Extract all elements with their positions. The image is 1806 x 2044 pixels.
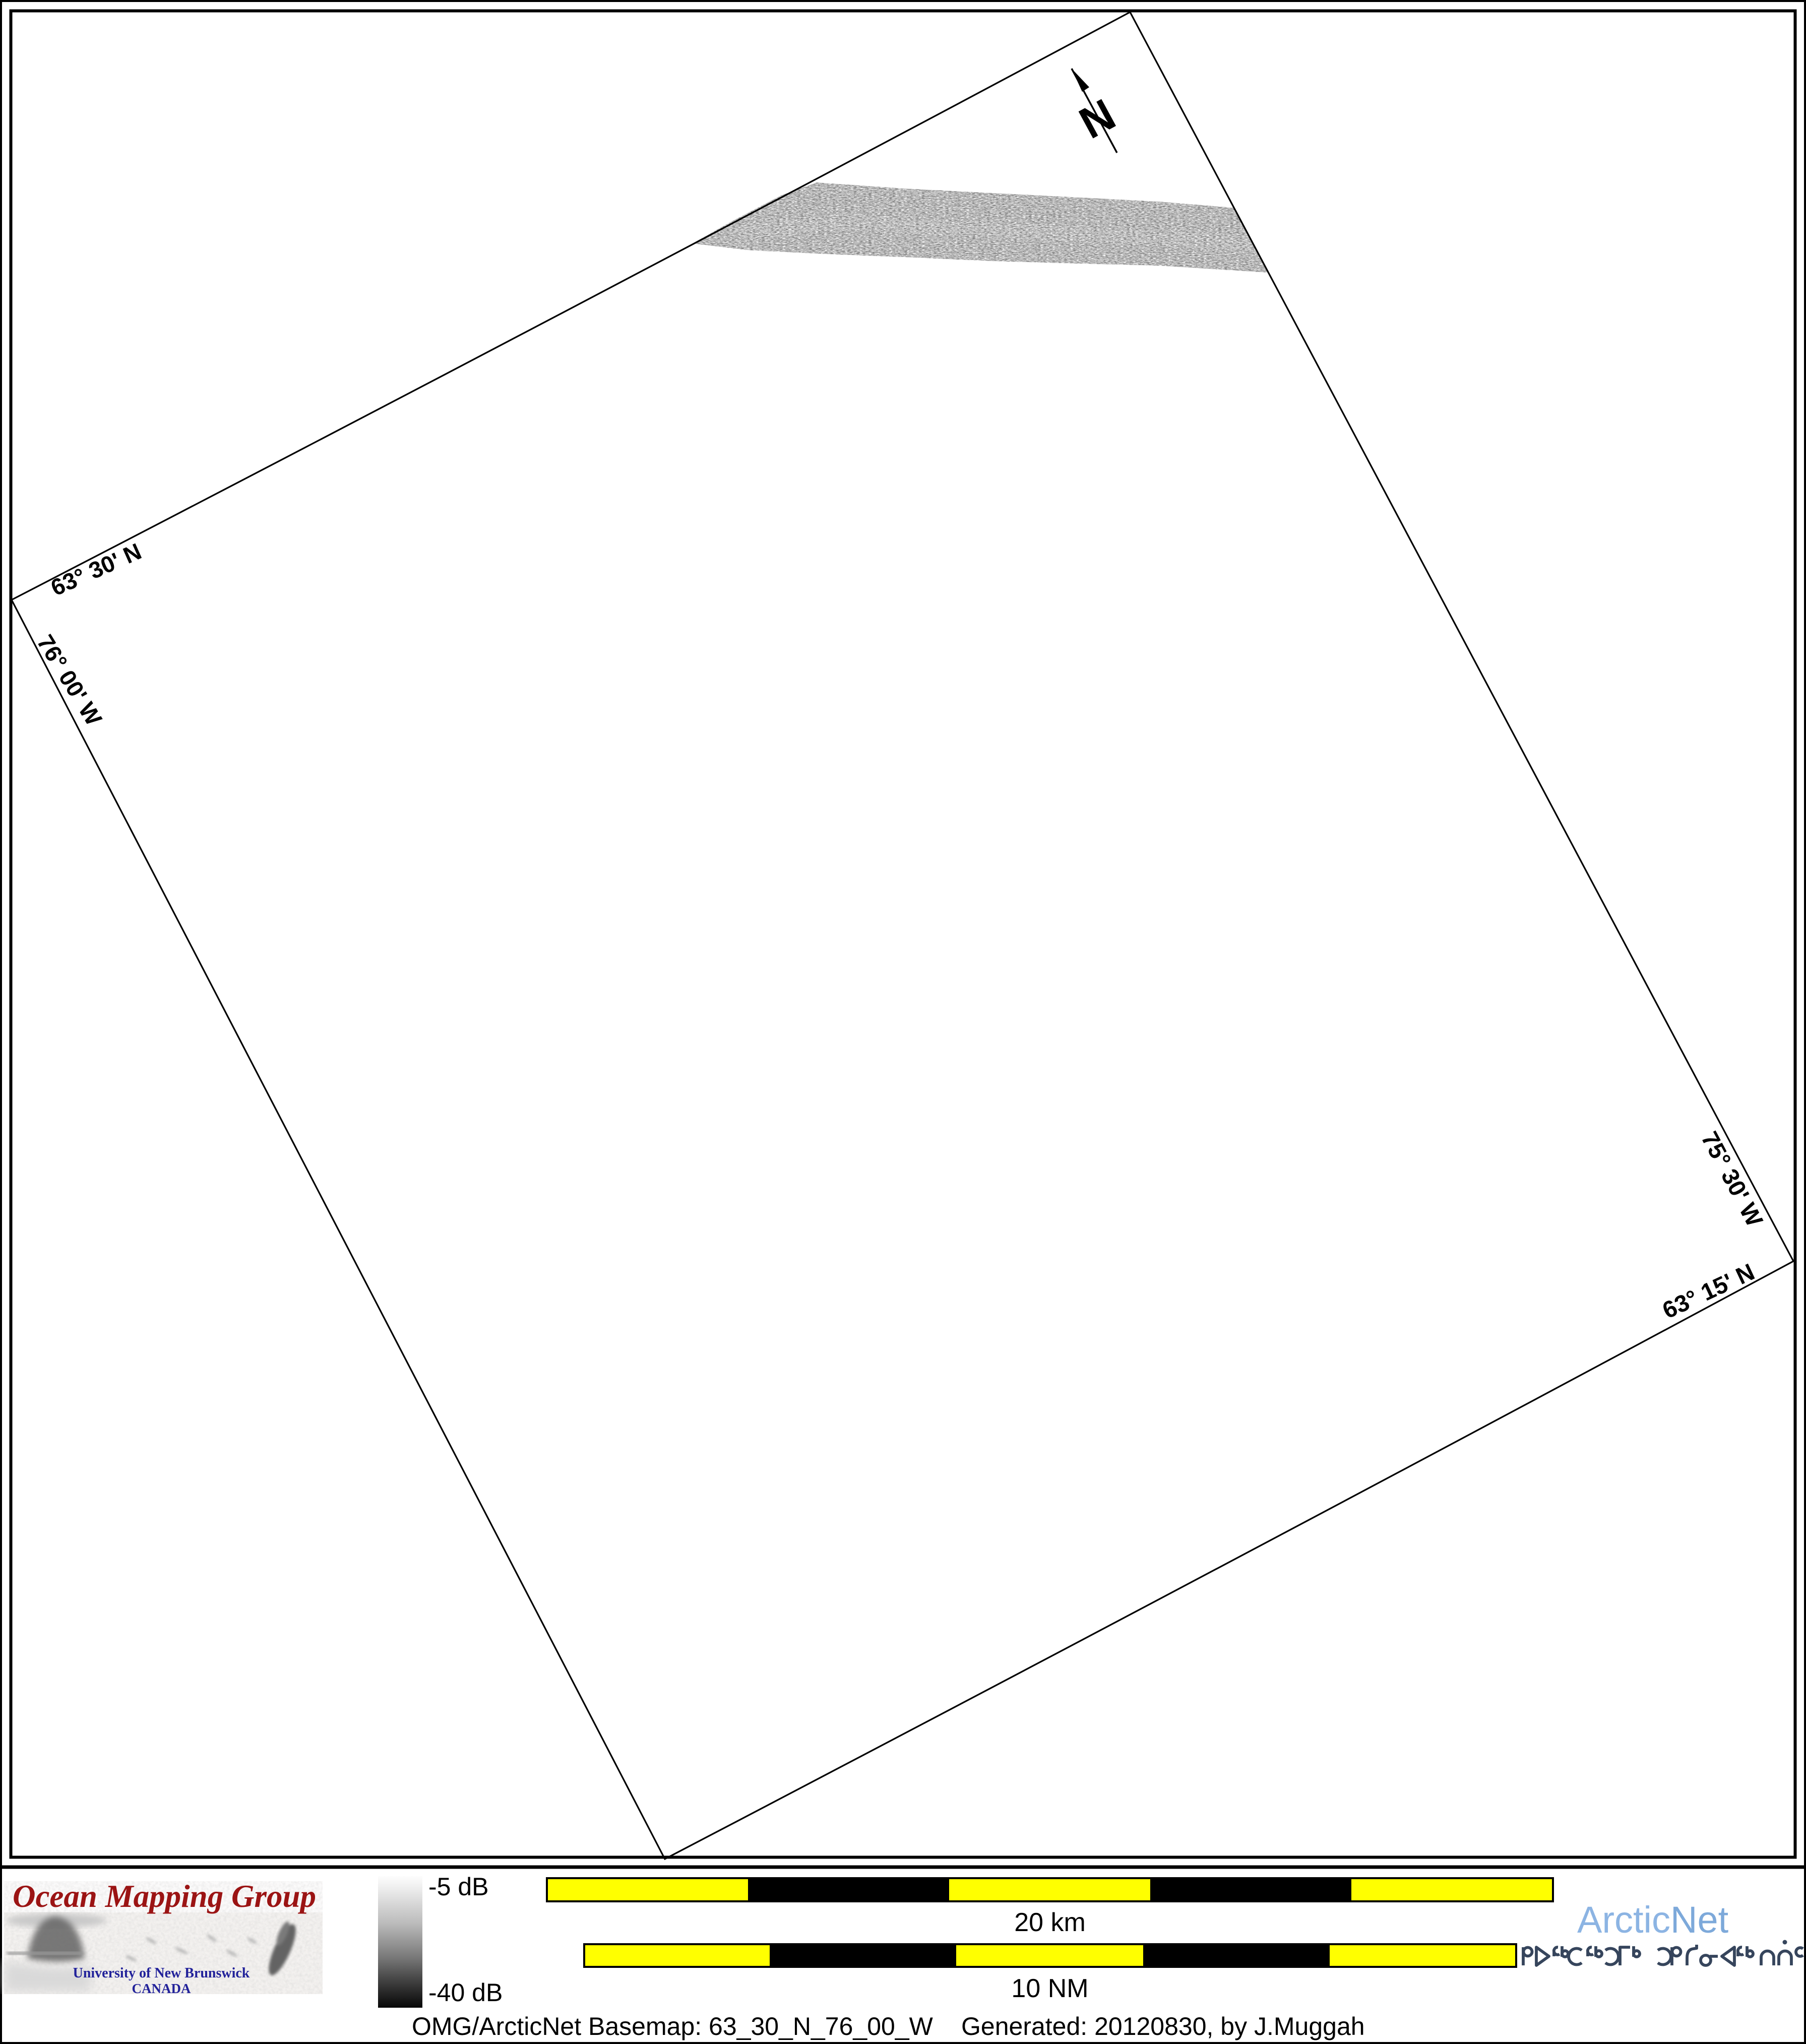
svg-text:ArcticNet: ArcticNet (1577, 1899, 1729, 1941)
svg-text:-40 dB: -40 dB (428, 1978, 503, 2007)
svg-text:-5 dB: -5 dB (428, 1873, 489, 1901)
svg-text:20 km: 20 km (1014, 1908, 1086, 1937)
svg-text:OMG/ArcticNet Basemap: 63_30_N: OMG/ArcticNet Basemap: 63_30_N_76_00_W (412, 2012, 933, 2040)
svg-text:University of New Brunswick: University of New Brunswick (73, 1965, 250, 1981)
svg-text:10 NM: 10 NM (1011, 1974, 1088, 2003)
svg-text:Ocean Mapping Group: Ocean Mapping Group (13, 1879, 316, 1914)
svg-text:Generated: 20120830, by J.Mugg: Generated: 20120830, by J.Muggah (961, 2012, 1365, 2040)
svg-text:CANADA: CANADA (132, 1981, 191, 1996)
